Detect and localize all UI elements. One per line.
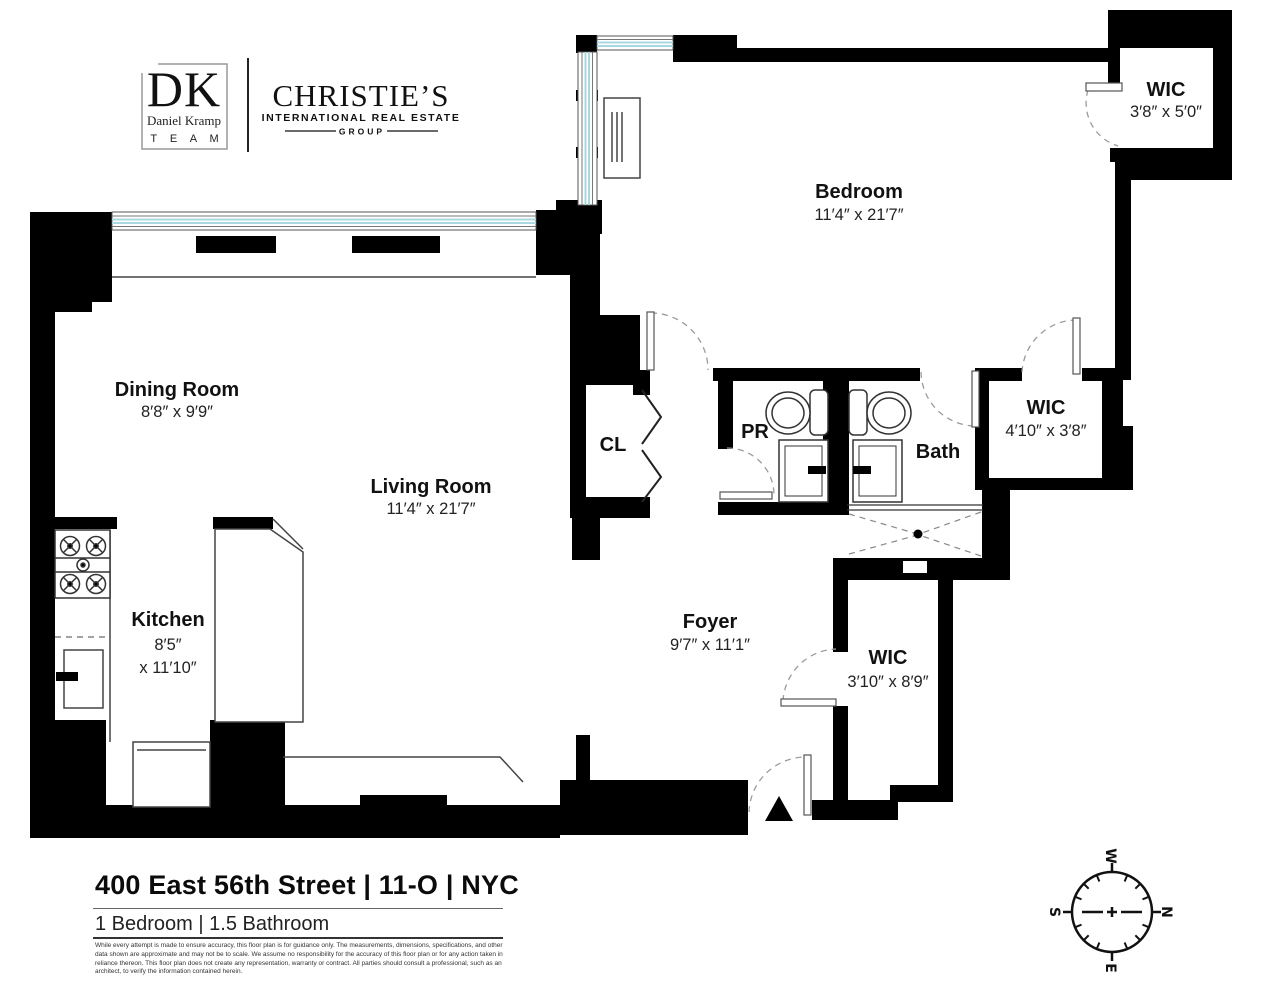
floorplan-page: Bedroom 11′4″ x 21′7″ WIC 3′8″ x 5′0″ Di… [0,0,1265,1000]
svg-text:11′4″ x 21′7″: 11′4″ x 21′7″ [814,206,903,224]
svg-text:3′10″ x 8′9″: 3′10″ x 8′9″ [847,673,928,691]
svg-text:Foyer: Foyer [683,611,738,633]
bath-door [921,371,979,427]
svg-text:WIC: WIC [1027,397,1066,419]
wic-mid-door [1022,318,1080,374]
footer: 400 East 56th Street | 11-O | NYC [95,870,515,901]
bath-toilet-icon [849,390,911,435]
footer-divider-bottom [93,937,503,939]
svg-text:Living Room: Living Room [370,476,491,498]
svg-text:4′10″ x 3′8″: 4′10″ x 3′8″ [1005,422,1086,440]
svg-text:Dining Room: Dining Room [115,379,239,401]
pr-toilet-icon [766,390,828,435]
svg-text:3′8″ x 5′0″: 3′8″ x 5′0″ [1130,103,1202,121]
wic-top-door [1086,83,1122,146]
svg-text:Daniel Kramp: Daniel Kramp [147,113,221,128]
svg-text:Kitchen: Kitchen [131,609,204,631]
bath-niche [903,561,927,573]
ptac-unit-icon [604,98,640,178]
svg-text:T E A M: T E A M [150,133,223,145]
room-label-bedroom: Bedroom 11′4″ x 21′7″ [814,181,903,224]
address-title: 400 East 56th Street | 11-O | NYC [95,870,515,901]
room-label-bath: Bath [916,441,960,463]
kitchen-sink-icon [56,650,103,708]
bedroom-door [647,312,708,370]
stove-icon [55,530,110,598]
bath-vanity-sink-icon [853,440,902,502]
entry-door [749,755,811,821]
refrigerator-icon [133,742,210,807]
entry-arrow-icon [765,796,793,821]
compass-east: E [1102,963,1118,973]
disclaimer-text: While every attempt is made to ensure ac… [95,942,507,977]
window-band-dining [112,212,536,277]
room-label-foyer: Foyer 9′7″ x 11′1″ [670,611,750,654]
svg-text:GROUP: GROUP [339,127,385,137]
svg-text:8′8″ x 9′9″: 8′8″ x 9′9″ [141,403,213,421]
svg-text:CHRISTIE’S: CHRISTIE’S [272,78,449,113]
footer-divider-top [93,908,503,909]
room-label-wic-bottom: WIC 3′10″ x 8′9″ [847,647,928,691]
svg-text:8′5″: 8′5″ [154,636,181,654]
svg-text:9′7″ x 11′1″: 9′7″ x 11′1″ [670,636,750,654]
pr-door [720,448,774,499]
svg-text:Bath: Bath [916,441,960,463]
room-label-wic-mid: WIC 4′10″ x 3′8″ [1005,397,1086,440]
wic-bottom-door [781,649,836,706]
svg-text:DK: DK [147,61,221,117]
window-band-bedroom-left [578,52,597,205]
cl-bifold-door-icon [642,390,661,502]
room-label-dining: Dining Room 8′8″ x 9′9″ [115,379,239,421]
dk-team-logo: DK Daniel Kramp T E A M [142,61,227,149]
room-label-closet: CL [600,434,627,456]
compass-rose: W S N E [1046,848,1174,973]
svg-text:CL: CL [600,434,627,456]
window-band-bedroom-top [597,36,673,50]
svg-text:x 11′10″: x 11′10″ [139,659,196,677]
living-room-niche [283,757,523,807]
svg-text:WIC: WIC [869,647,908,669]
svg-text:WIC: WIC [1147,79,1186,101]
room-label-wic-top: WIC 3′8″ x 5′0″ [1130,79,1202,121]
pr-vanity-sink-icon [779,440,828,502]
svg-text:11′4″ x 21′7″: 11′4″ x 21′7″ [386,500,475,518]
svg-text:Bedroom: Bedroom [815,181,903,203]
bed-bath-summary: 1 Bedroom | 1.5 Bathroom [95,913,329,936]
christies-logo: CHRISTIE’S INTERNATIONAL REAL ESTATE GRO… [262,78,461,137]
shower-drain-icon [847,505,983,556]
floorplan-svg: Bedroom 11′4″ x 21′7″ WIC 3′8″ x 5′0″ Di… [0,0,1265,1000]
room-label-powder: PR [741,421,769,443]
svg-text:INTERNATIONAL REAL ESTATE: INTERNATIONAL REAL ESTATE [262,112,461,124]
compass-south: S [1046,907,1062,917]
compass-north: N [1158,906,1174,918]
room-label-living: Living Room 11′4″ x 21′7″ [370,476,491,518]
compass-needle [1082,907,1142,917]
room-label-kitchen: Kitchen 8′5″ x 11′10″ [131,609,204,677]
compass-west: W [1102,848,1118,863]
svg-text:PR: PR [741,421,769,443]
